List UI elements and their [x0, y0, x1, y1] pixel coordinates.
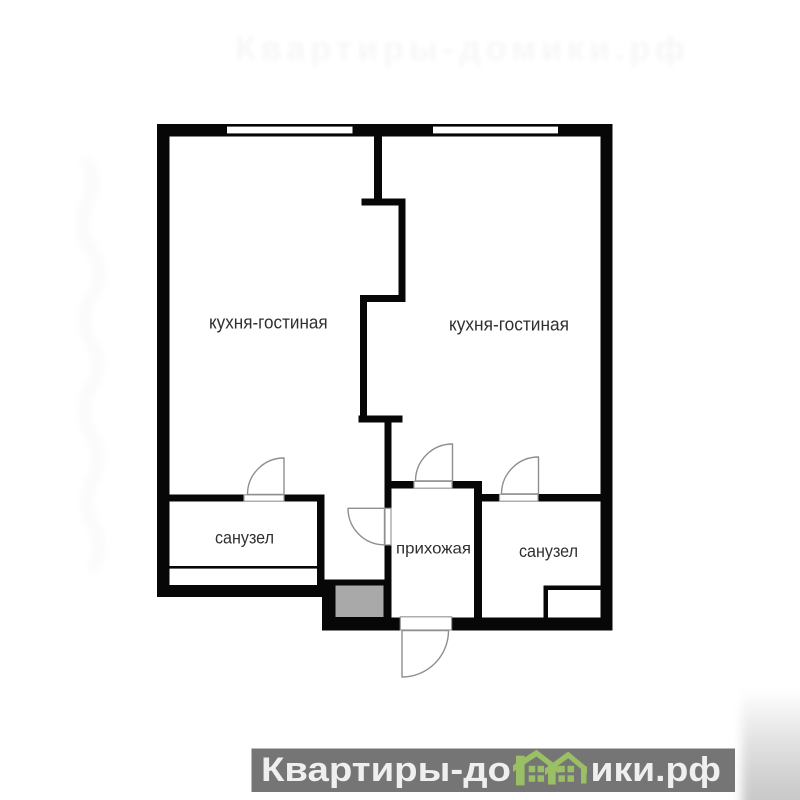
svg-text:Квартиры-домики.рф: Квартиры-домики.рф: [235, 30, 685, 68]
svg-text:санузел: санузел: [215, 528, 274, 548]
svg-text:кухня-гостиная: кухня-гостиная: [449, 314, 569, 335]
svg-text:санузел: санузел: [519, 541, 578, 561]
svg-text:Квартиры-до: Квартиры-до: [261, 751, 511, 789]
svg-text:кухня-гостиная: кухня-гостиная: [209, 312, 328, 333]
svg-text:ики.рф: ики.рф: [591, 751, 722, 789]
svg-text:прихожая: прихожая: [396, 540, 471, 557]
